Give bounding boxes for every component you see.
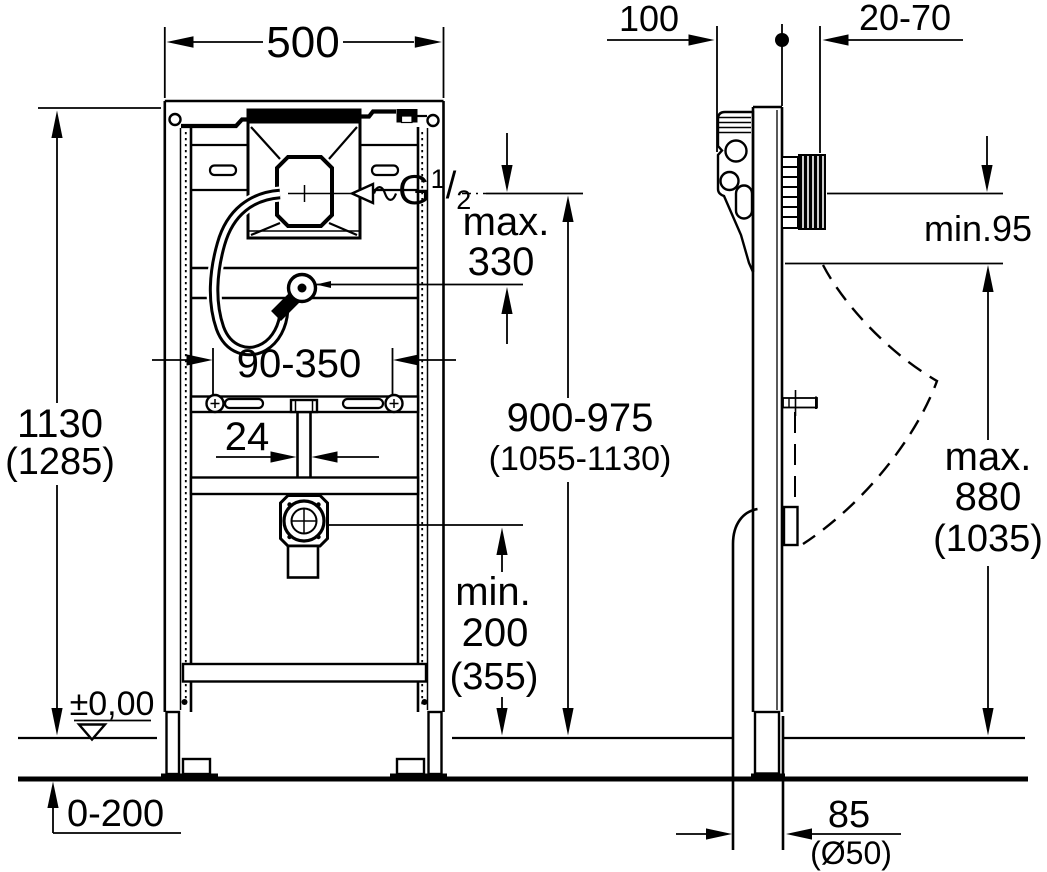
wall-plane-dot xyxy=(775,33,789,47)
frame-feet xyxy=(161,699,447,781)
technical-drawing: 500 1130 (1285) G1/2 max. 330 xyxy=(0,0,1047,872)
flush-box-funnel xyxy=(248,110,360,238)
corner-bolt-right xyxy=(428,115,439,126)
dim-frame-height-alt-label: (1285) xyxy=(5,441,115,483)
dim-drain-height: min. 200 (355) xyxy=(327,525,538,736)
dim-frame-width-label: 500 xyxy=(266,18,339,67)
dim-fixing-spacing: 90-350 xyxy=(152,342,456,395)
flush-connector xyxy=(782,154,826,230)
dim-water-connection-label: G1/2 xyxy=(398,164,471,215)
dim-drain-height-label3: (355) xyxy=(450,656,539,698)
frame-rail-side xyxy=(753,107,782,712)
flush-pipe xyxy=(291,400,317,478)
dim-frame-depth: 100 xyxy=(607,0,789,152)
dim-urinal-height-label1: max. xyxy=(945,435,1032,479)
water-connection-fitting xyxy=(276,275,316,317)
lower-crossbar xyxy=(191,478,418,495)
drain-socket xyxy=(281,496,328,578)
dimensions: 500 1130 (1285) G1/2 max. 330 xyxy=(5,0,1043,871)
dim-mounting-height-label: 900-975 xyxy=(507,396,654,440)
bottom-crossbar xyxy=(183,664,426,682)
dim-mounting-height-alt-label: (1055-1130) xyxy=(489,440,672,478)
urinal-fixing-screw xyxy=(783,390,817,416)
dim-wall-range-label: 20-70 xyxy=(859,0,951,38)
floor-level-label: ±0,00 xyxy=(70,685,155,723)
installation-drawing-page: 500 1130 (1285) G1/2 max. 330 xyxy=(0,0,1047,872)
dim-drain-diameter-label: (Ø50) xyxy=(810,835,892,871)
dim-drain-height-label1: min. xyxy=(455,570,531,614)
flush-box-side xyxy=(718,112,753,272)
dim-connection-offset-label1: max. xyxy=(463,200,550,244)
dim-urinal-height: max. 880 (1035) xyxy=(933,265,1043,736)
dim-flush-pipe-width-label: 24 xyxy=(225,415,270,459)
dim-drain-offset-label: 85 xyxy=(828,794,870,836)
floor-level-marker: ±0,00 xyxy=(70,685,155,740)
side-foot xyxy=(751,712,785,781)
drain-pipe-side xyxy=(733,509,783,850)
dim-frame-width: 500 xyxy=(165,18,444,98)
dim-wall-range: 20-70 xyxy=(820,0,963,153)
dim-min-inset-label: min.95 xyxy=(924,208,1032,249)
dim-connection-offset-label2: 330 xyxy=(468,240,535,284)
dim-floor-range-label: 0-200 xyxy=(67,793,164,835)
corner-bolt-left xyxy=(170,114,181,125)
dim-fixing-spacing-label: 90-350 xyxy=(237,342,362,386)
dim-frame-height-label: 1130 xyxy=(17,402,103,446)
dim-drain-height-label2: 200 xyxy=(462,611,529,655)
dim-urinal-height-label2: 880 xyxy=(955,475,1022,519)
dim-frame-height: 1130 (1285) xyxy=(5,108,161,736)
drain-spigot xyxy=(784,507,798,545)
dim-connection-offset: max. 330 xyxy=(463,133,583,344)
dim-urinal-height-label3: (1035) xyxy=(933,518,1043,560)
dim-frame-depth-label: 100 xyxy=(619,0,679,39)
dim-drain-offset: 85 (Ø50) xyxy=(676,794,901,871)
dim-floor-range: 0-200 xyxy=(47,782,181,836)
panel-slot-right xyxy=(372,166,398,176)
panel-slot-left xyxy=(210,166,236,176)
